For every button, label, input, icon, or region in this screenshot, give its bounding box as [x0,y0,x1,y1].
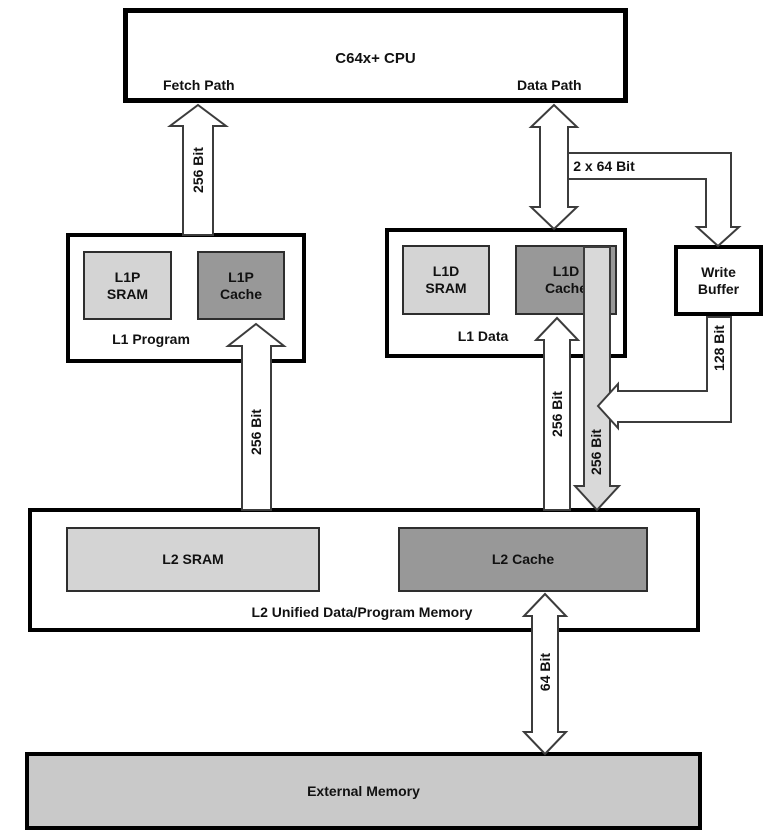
fetch-bus-label: 256 Bit [190,130,206,210]
l1d-write-bus-label: 256 Bit [588,412,604,492]
l1d-read-bus-label: 256 Bit [549,374,565,454]
l1p-l2-bus-label: 256 Bit [248,392,264,472]
external-bus-label: 64 Bit [537,632,553,712]
l1-data-box: L1D SRAM L1D Cache L1 Data [385,228,627,358]
l1d-cache-box: L1D Cache [515,245,617,315]
fetch-path-label: Fetch Path [163,77,235,93]
cpu-box: C64x+ CPU Fetch Path Data Path [123,8,628,103]
write-buffer-box: Write Buffer [674,245,763,316]
l1-program-box: L1P SRAM L1P Cache L1 Program [66,233,306,363]
external-memory-box: External Memory [25,752,702,830]
c64x-memory-architecture-diagram: C64x+ CPU Fetch Path Data Path L1P SRAM … [0,0,772,838]
write-buffer-bus-label: 128 Bit [711,308,727,388]
l2-box: L2 SRAM L2 Cache L2 Unified Data/Program… [28,508,700,632]
cpu-title: C64x+ CPU [128,50,623,67]
l2-label: L2 Unified Data/Program Memory [32,604,692,620]
l1d-sram-box: L1D SRAM [402,245,490,315]
l1p-cache-box: L1P Cache [197,251,285,320]
l2-sram-box: L2 SRAM [66,527,320,592]
data-bus-label: 2 x 64 Bit [544,158,664,174]
l1-program-label: L1 Program [70,331,232,347]
bus-arrows-layer [0,0,772,838]
l2-cache-box: L2 Cache [398,527,648,592]
data-path-label: Data Path [517,77,582,93]
l1-data-label: L1 Data [389,328,577,344]
l1p-sram-box: L1P SRAM [83,251,172,320]
